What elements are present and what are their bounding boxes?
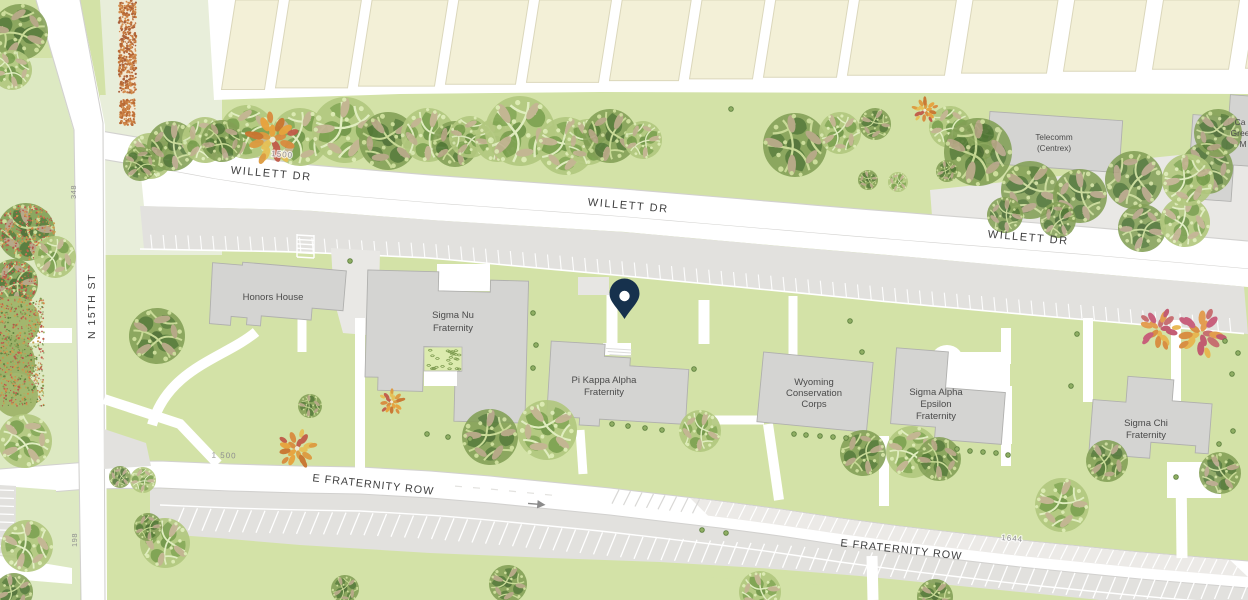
svg-text:Conservation: Conservation [786,388,842,399]
svg-text:Fraternity: Fraternity [916,411,956,422]
svg-text:Fraternity: Fraternity [584,387,624,398]
svg-text:Epsilon: Epsilon [920,399,951,410]
svg-text:M: M [1239,139,1246,149]
svg-text:Sigma Alpha: Sigma Alpha [909,387,963,398]
svg-text:Pi Kappa Alpha: Pi Kappa Alpha [572,375,638,386]
svg-text:Fraternity: Fraternity [433,323,473,334]
svg-text:1500: 1500 [271,149,293,160]
svg-text:1644: 1644 [1001,533,1023,544]
svg-text:348: 348 [69,185,78,199]
svg-text:Ca: Ca [1235,117,1246,127]
svg-text:Sigma Nu: Sigma Nu [432,310,474,321]
svg-text:Wyoming: Wyoming [794,377,834,388]
svg-text:(Centrex): (Centrex) [1037,144,1071,153]
svg-text:Gree: Gree [1231,128,1248,138]
svg-text:Telecomm: Telecomm [1035,133,1072,142]
svg-text:N 15TH ST: N 15TH ST [86,273,98,339]
svg-text:Honors House: Honors House [243,292,304,303]
svg-text:Sigma Chi: Sigma Chi [1124,418,1168,429]
svg-text:198: 198 [70,533,79,547]
svg-text:Fraternity: Fraternity [1126,430,1166,441]
svg-text:1 500: 1 500 [211,451,236,461]
svg-text:Corps: Corps [801,399,827,410]
